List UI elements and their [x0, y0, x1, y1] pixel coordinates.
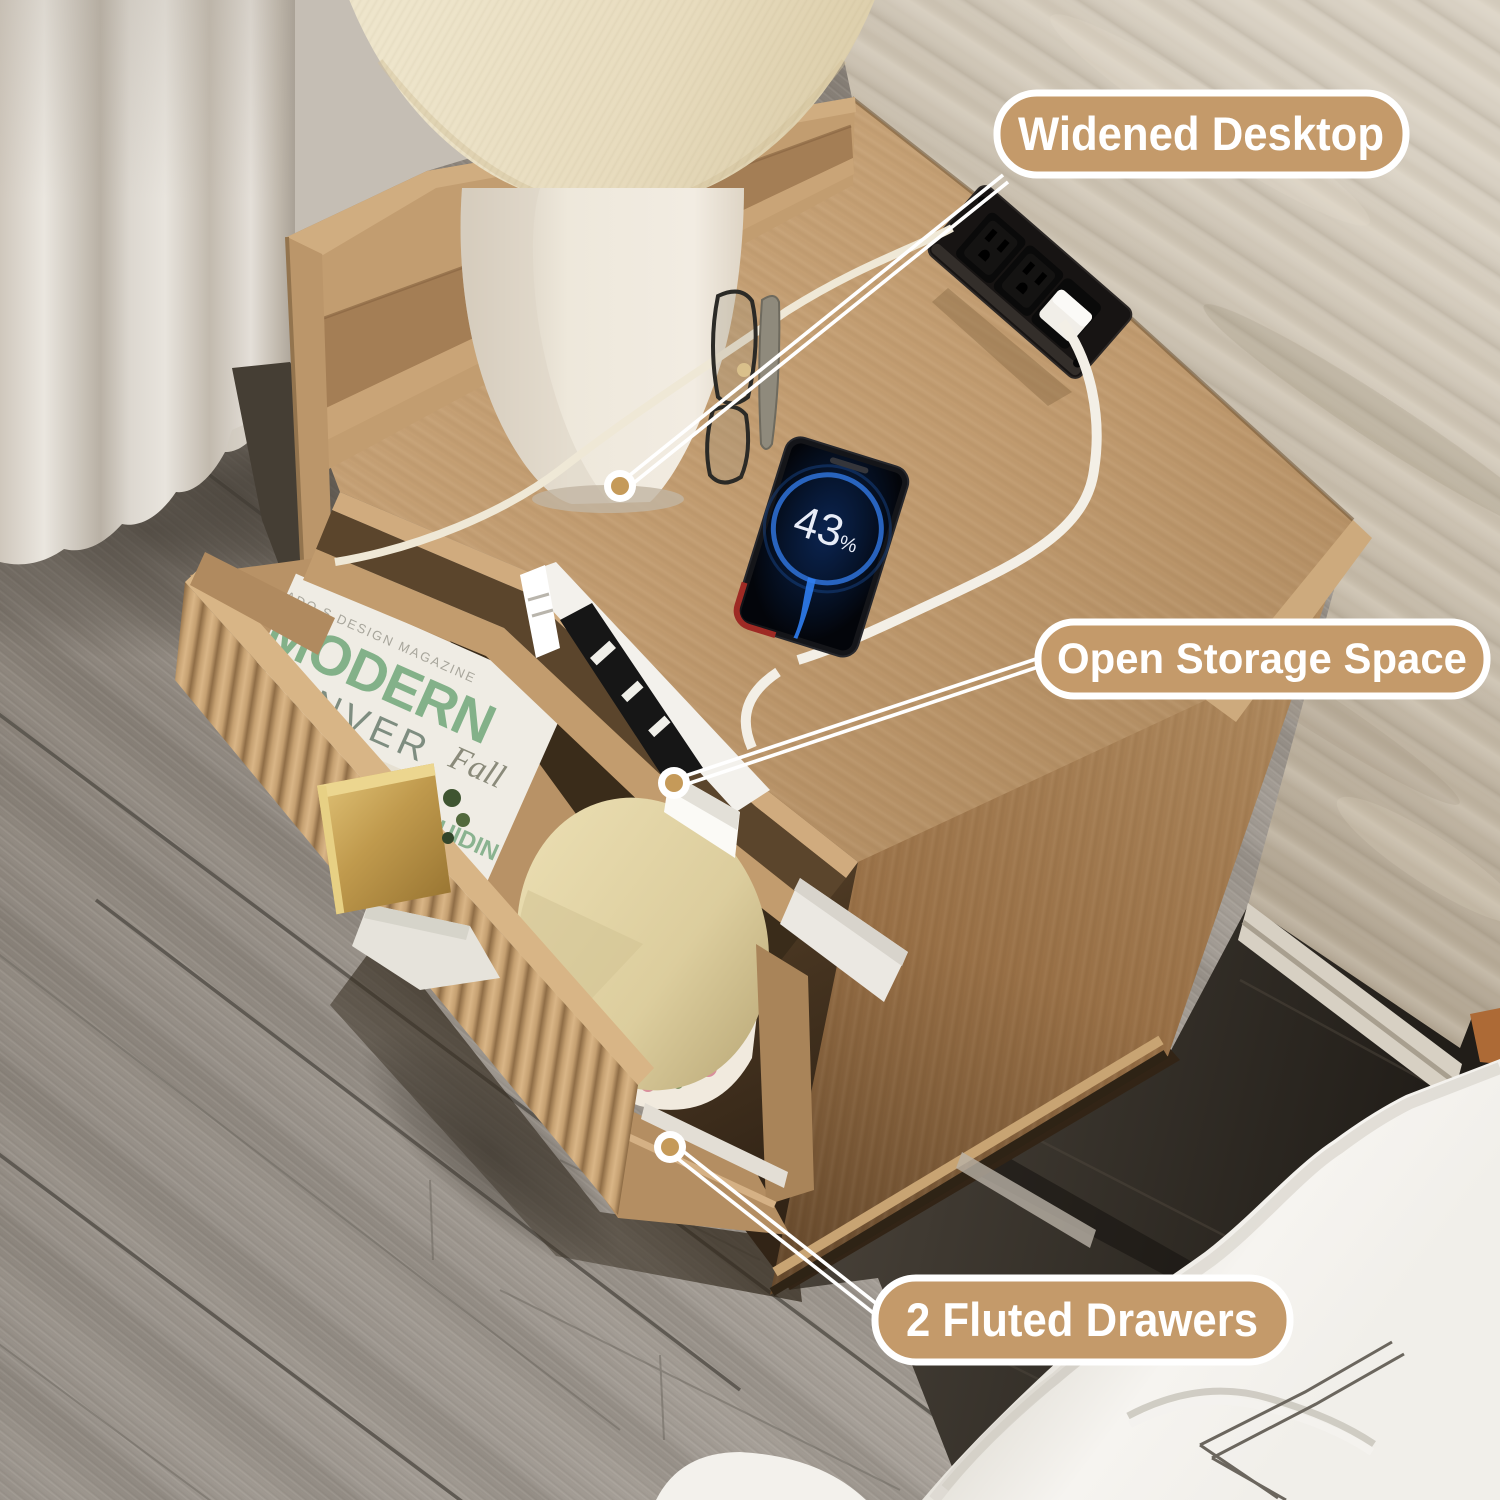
- svg-text:Open Storage Space: Open Storage Space: [1057, 635, 1467, 683]
- svg-text:Widened Desktop: Widened Desktop: [1018, 107, 1384, 160]
- svg-text:2 Fluted Drawers: 2 Fluted Drawers: [906, 1293, 1258, 1346]
